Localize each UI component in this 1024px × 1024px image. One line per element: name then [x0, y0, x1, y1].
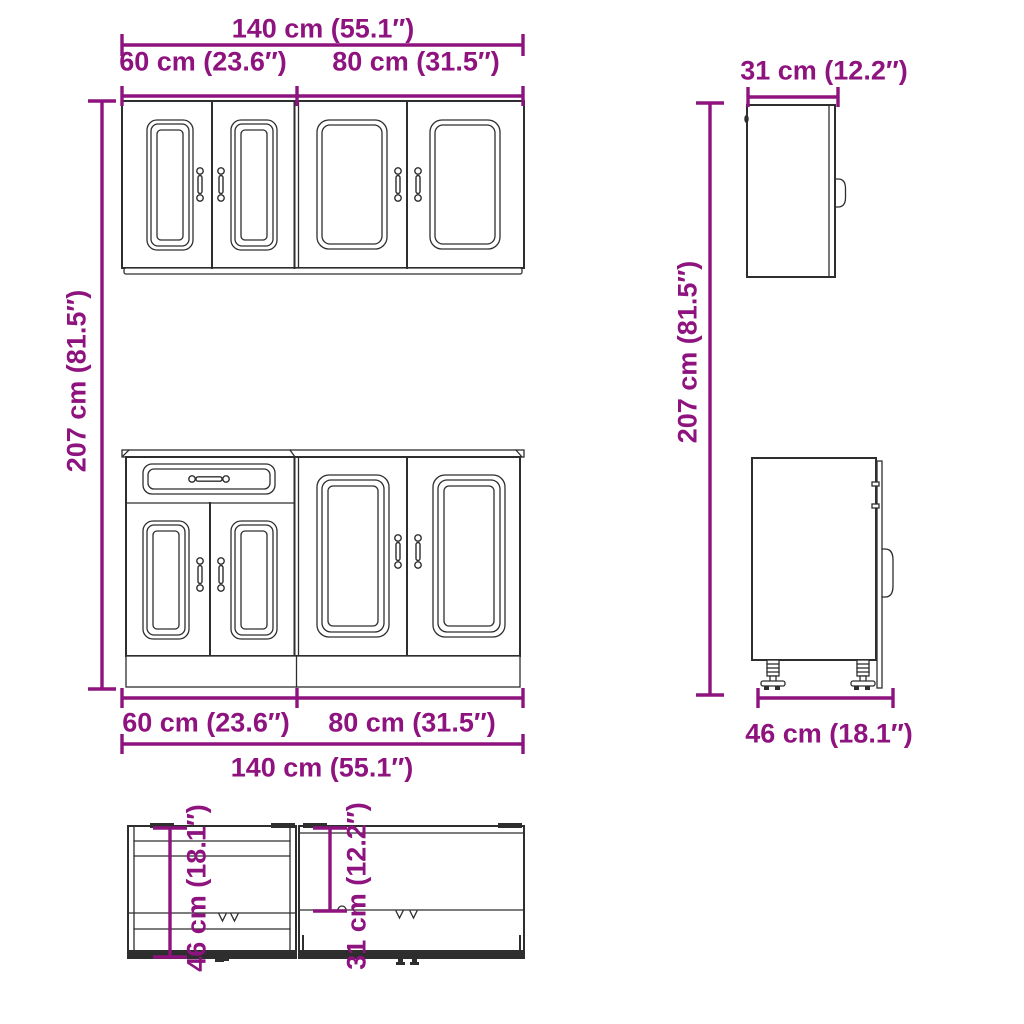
side-handle [835, 179, 846, 207]
dim-label-base-depth-plan: 46 cm (18.1″) [182, 804, 213, 972]
hinge-mark [872, 482, 879, 486]
hinge-mark [872, 504, 879, 508]
front-edge [299, 950, 524, 958]
side-handle [882, 549, 893, 597]
base-cabinet-side-view [752, 458, 893, 690]
dim-label-left-unit-top: 60 cm (23.6″) [119, 47, 287, 78]
base-cabinet-front-view [122, 450, 524, 687]
side-door-edge [877, 461, 882, 688]
dim-label-total-width-top: 140 cm (55.1″) [232, 14, 415, 45]
mount-tab [271, 823, 295, 828]
hinge-mark [744, 115, 748, 123]
mount-tab [498, 823, 522, 828]
drawer-handle [189, 476, 229, 482]
dim-base-depth-side [758, 688, 893, 708]
dim-label-total-width-bottom: 140 cm (55.1″) [231, 753, 414, 784]
dim-label-right-unit-top: 80 cm (31.5″) [332, 47, 500, 78]
wall-cabinet-top-view [299, 823, 524, 965]
plinth [126, 656, 520, 687]
dim-label-base-depth-side: 46 cm (18.1″) [745, 719, 913, 750]
cabinet-line-art [0, 0, 1024, 1024]
kitchen-cabinet-dimension-diagram: 140 cm (55.1″) 60 cm (23.6″) 80 cm (31.5… [0, 0, 1024, 1024]
dim-label-left-unit-bottom: 60 cm (23.6″) [122, 708, 290, 739]
dim-label-wall-depth-plan: 31 cm (12.2″) [342, 802, 373, 970]
dim-label-height-right: 207 cm (81.5″) [673, 261, 704, 444]
wall-cabinet-front-view [122, 101, 524, 274]
wall-cabinet-side-view [744, 105, 845, 277]
adjustable-leg-back [851, 660, 875, 690]
dim-unit-widths-bottom [122, 688, 523, 708]
adjustable-leg-front [761, 660, 785, 690]
dim-label-wall-depth-side: 31 cm (12.2″) [740, 56, 908, 87]
dim-label-right-unit-bottom: 80 cm (31.5″) [328, 708, 496, 739]
dim-label-height-left: 207 cm (81.5″) [62, 290, 93, 473]
